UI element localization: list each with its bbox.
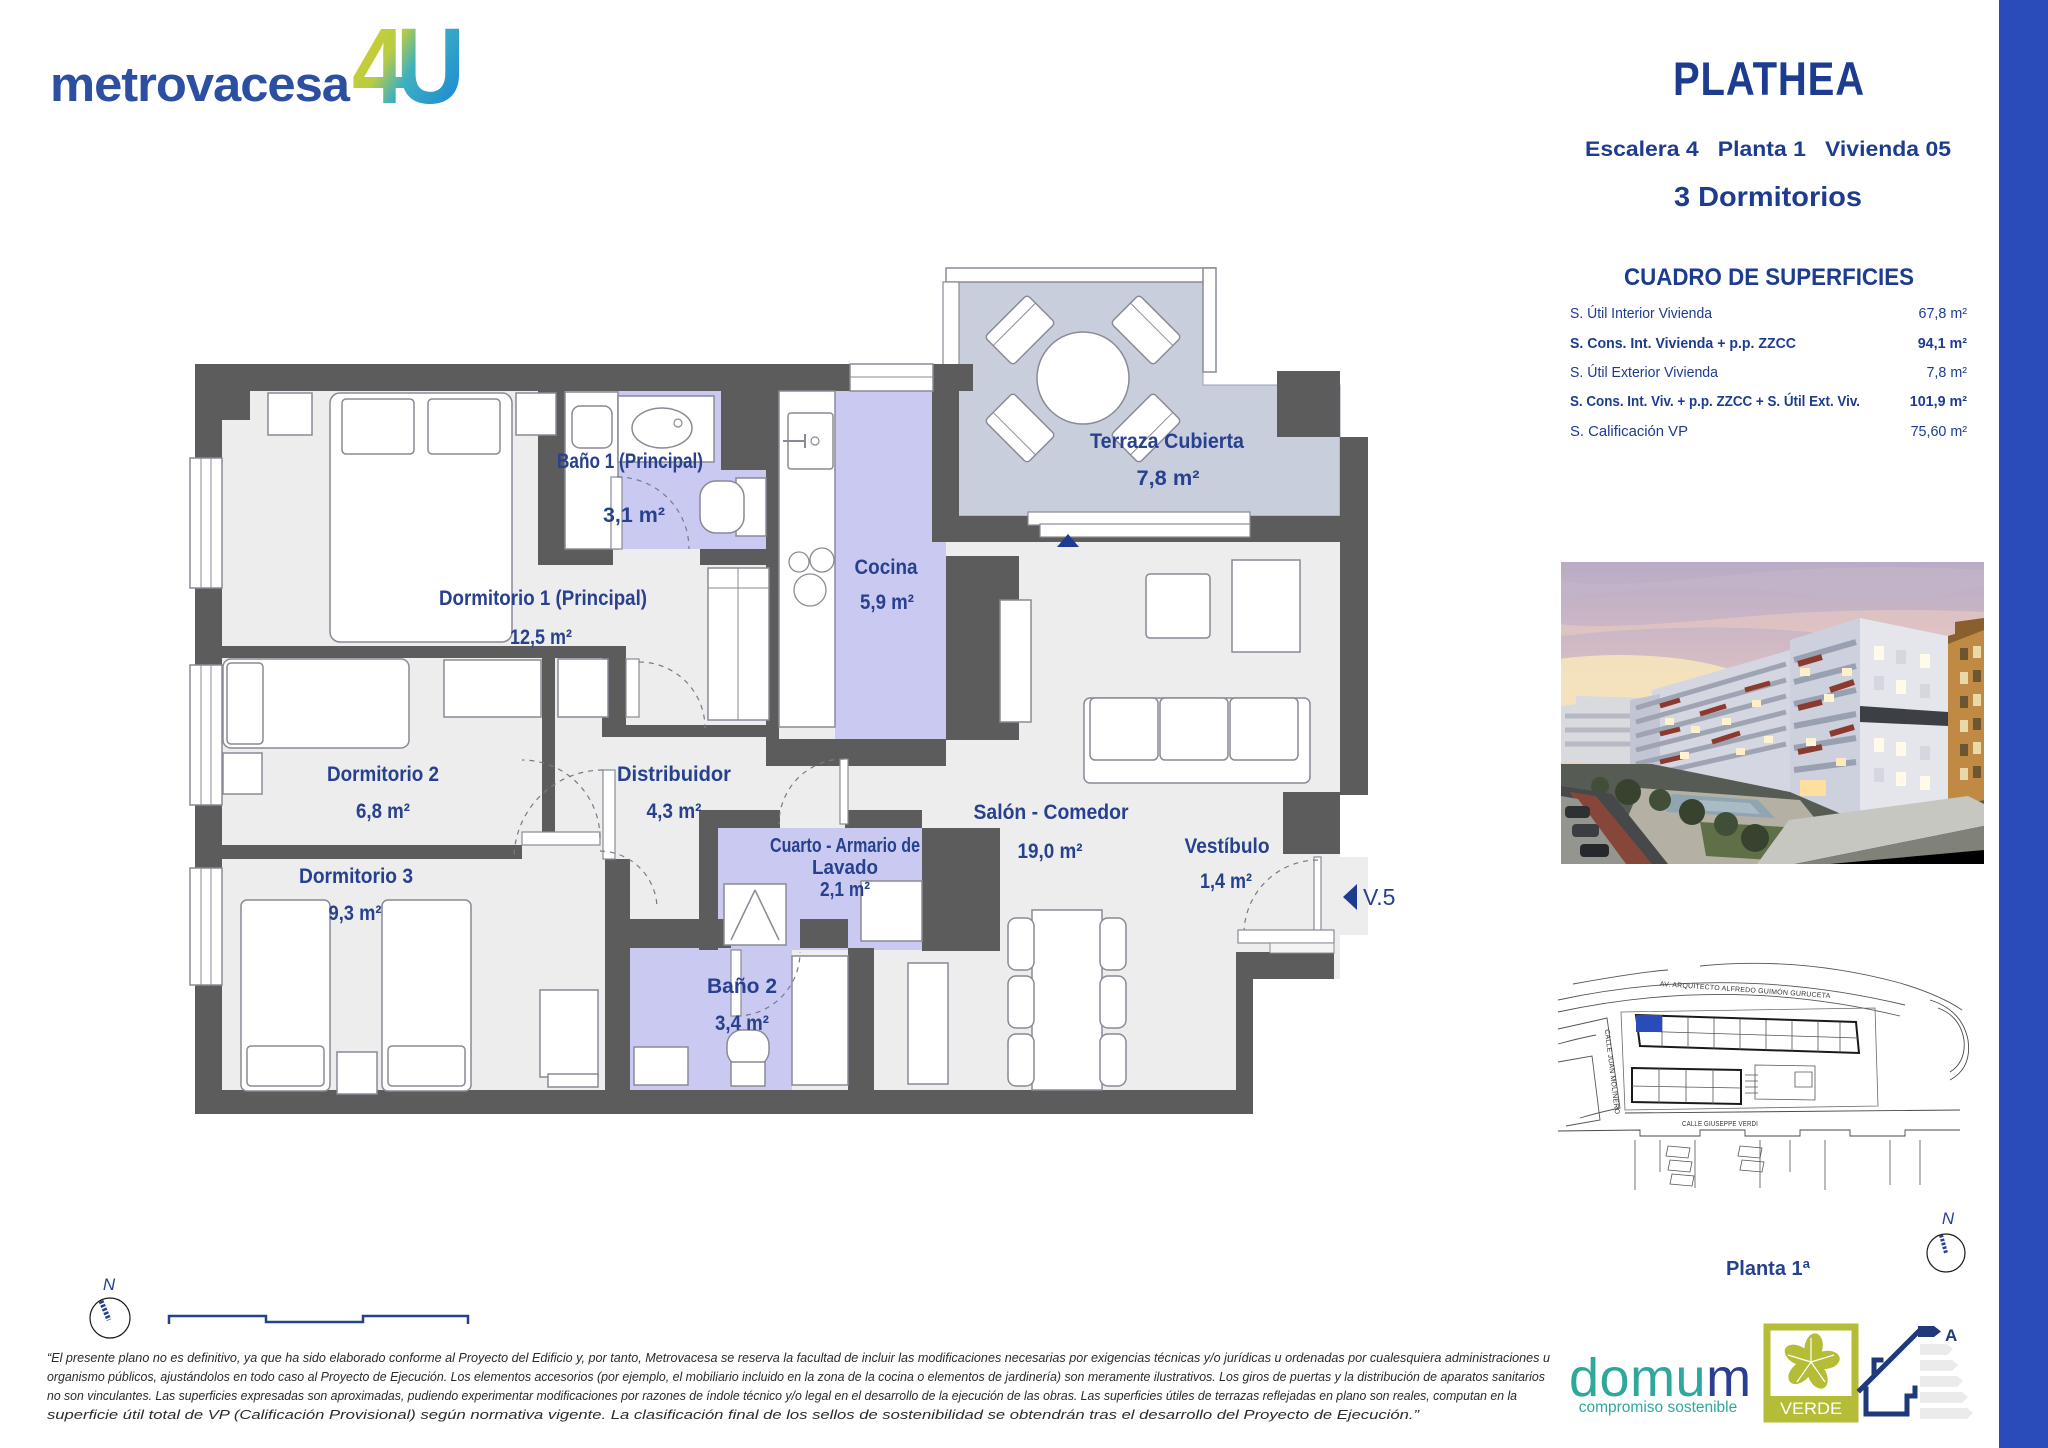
svg-text:5,9 m²: 5,9 m² <box>860 591 914 614</box>
svg-text:94,1 m²: 94,1 m² <box>1918 336 1968 352</box>
svg-text:9,3 m²: 9,3 m² <box>329 902 382 925</box>
svg-text:6,8 m²: 6,8 m² <box>356 800 410 823</box>
svg-text:PLATHEA: PLATHEA <box>1673 52 1865 105</box>
svg-text:Baño 1 (Principal): Baño 1 (Principal) <box>557 450 703 473</box>
svg-text:Distribuidor: Distribuidor <box>617 763 731 786</box>
svg-text:3,1 m²: 3,1 m² <box>603 504 665 527</box>
svg-text:Dormitorio 2: Dormitorio 2 <box>327 763 439 786</box>
svg-text:S. Cons. Int. Viv. + p.p. ZZCC: S. Cons. Int. Viv. + p.p. ZZCC + S. Útil… <box>1570 392 1860 410</box>
svg-text:Escalera 4 Planta 1 Vivien: Escalera 4 Planta 1 Vivienda 05 <box>1585 138 1951 161</box>
svg-text:S. Útil Interior Vivienda: S. Útil Interior Vivienda <box>1570 305 1712 322</box>
svg-text:75,60 m²: 75,60 m² <box>1911 424 1968 440</box>
svg-text:7,8 m²: 7,8 m² <box>1137 467 1200 490</box>
svg-text:7,8 m²: 7,8 m² <box>1926 365 1967 381</box>
svg-text:Dormitorio 3: Dormitorio 3 <box>299 865 413 888</box>
svg-text:4U: 4U <box>352 5 460 126</box>
svg-text:A: A <box>1945 1326 1957 1345</box>
svg-text:4,3 m²: 4,3 m² <box>647 800 702 823</box>
svg-text:3,4 m²: 3,4 m² <box>715 1012 769 1035</box>
svg-text:3 Dormitorios: 3 Dormitorios <box>1674 181 1862 212</box>
svg-text:CUADRO DE SUPERFICIES: CUADRO DE SUPERFICIES <box>1624 264 1914 291</box>
svg-text:Terraza Cubierta: Terraza Cubierta <box>1090 430 1244 453</box>
svg-text:101,9 m²: 101,9 m² <box>1910 394 1967 410</box>
svg-text:S. Calificación VP: S. Calificación VP <box>1570 424 1688 440</box>
svg-text:19,0 m²: 19,0 m² <box>1018 840 1083 863</box>
svg-text:Cocina: Cocina <box>855 556 918 579</box>
svg-text:organismo públicos, ajustándol: organismo públicos, ajustándolos en todo… <box>47 1369 1545 1384</box>
svg-text:V.5: V.5 <box>1363 884 1395 910</box>
svg-text:S. Cons. Int. Vivienda + p.p.: S. Cons. Int. Vivienda + p.p. ZZCC <box>1570 336 1796 352</box>
svg-text:12,5 m²: 12,5 m² <box>510 626 572 649</box>
svg-text:Planta 1ª: Planta 1ª <box>1726 1258 1811 1280</box>
svg-text:Salón - Comedor: Salón - Comedor <box>974 801 1129 824</box>
svg-text:VERDE: VERDE <box>1780 1399 1842 1418</box>
svg-text:no son vinculantes. Las superf: no son vinculantes. Las superficies expr… <box>47 1388 1517 1403</box>
svg-text:Dormitorio 1 (Principal): Dormitorio 1 (Principal) <box>439 587 647 610</box>
svg-text:“El presente plano no es defin: “El presente plano no es definitivo, ya … <box>47 1350 1551 1365</box>
svg-text:Vestíbulo: Vestíbulo <box>1185 835 1270 858</box>
svg-text:Lavado: Lavado <box>812 857 878 879</box>
svg-text:2,1 m²: 2,1 m² <box>820 879 870 901</box>
svg-text:1,4 m²: 1,4 m² <box>1200 870 1252 893</box>
svg-text:metrovacesa: metrovacesa <box>50 58 351 112</box>
svg-text:N: N <box>1942 1209 1955 1228</box>
svg-text:compromiso sostenible: compromiso sostenible <box>1579 1399 1738 1416</box>
svg-text:CALLE GIUSEPPE VERDI: CALLE GIUSEPPE VERDI <box>1682 1119 1758 1128</box>
svg-text:N: N <box>103 1275 116 1294</box>
svg-text:superficie útil total de VP (C: superficie útil total de VP (Calificació… <box>47 1407 1420 1422</box>
svg-text:Baño 2: Baño 2 <box>707 975 777 998</box>
svg-text:Cuarto - Armario de: Cuarto - Armario de <box>770 835 920 857</box>
svg-text:67,8 m²: 67,8 m² <box>1919 306 1968 322</box>
svg-text:S. Útil Exterior Vivienda: S. Útil Exterior Vivienda <box>1570 364 1718 381</box>
